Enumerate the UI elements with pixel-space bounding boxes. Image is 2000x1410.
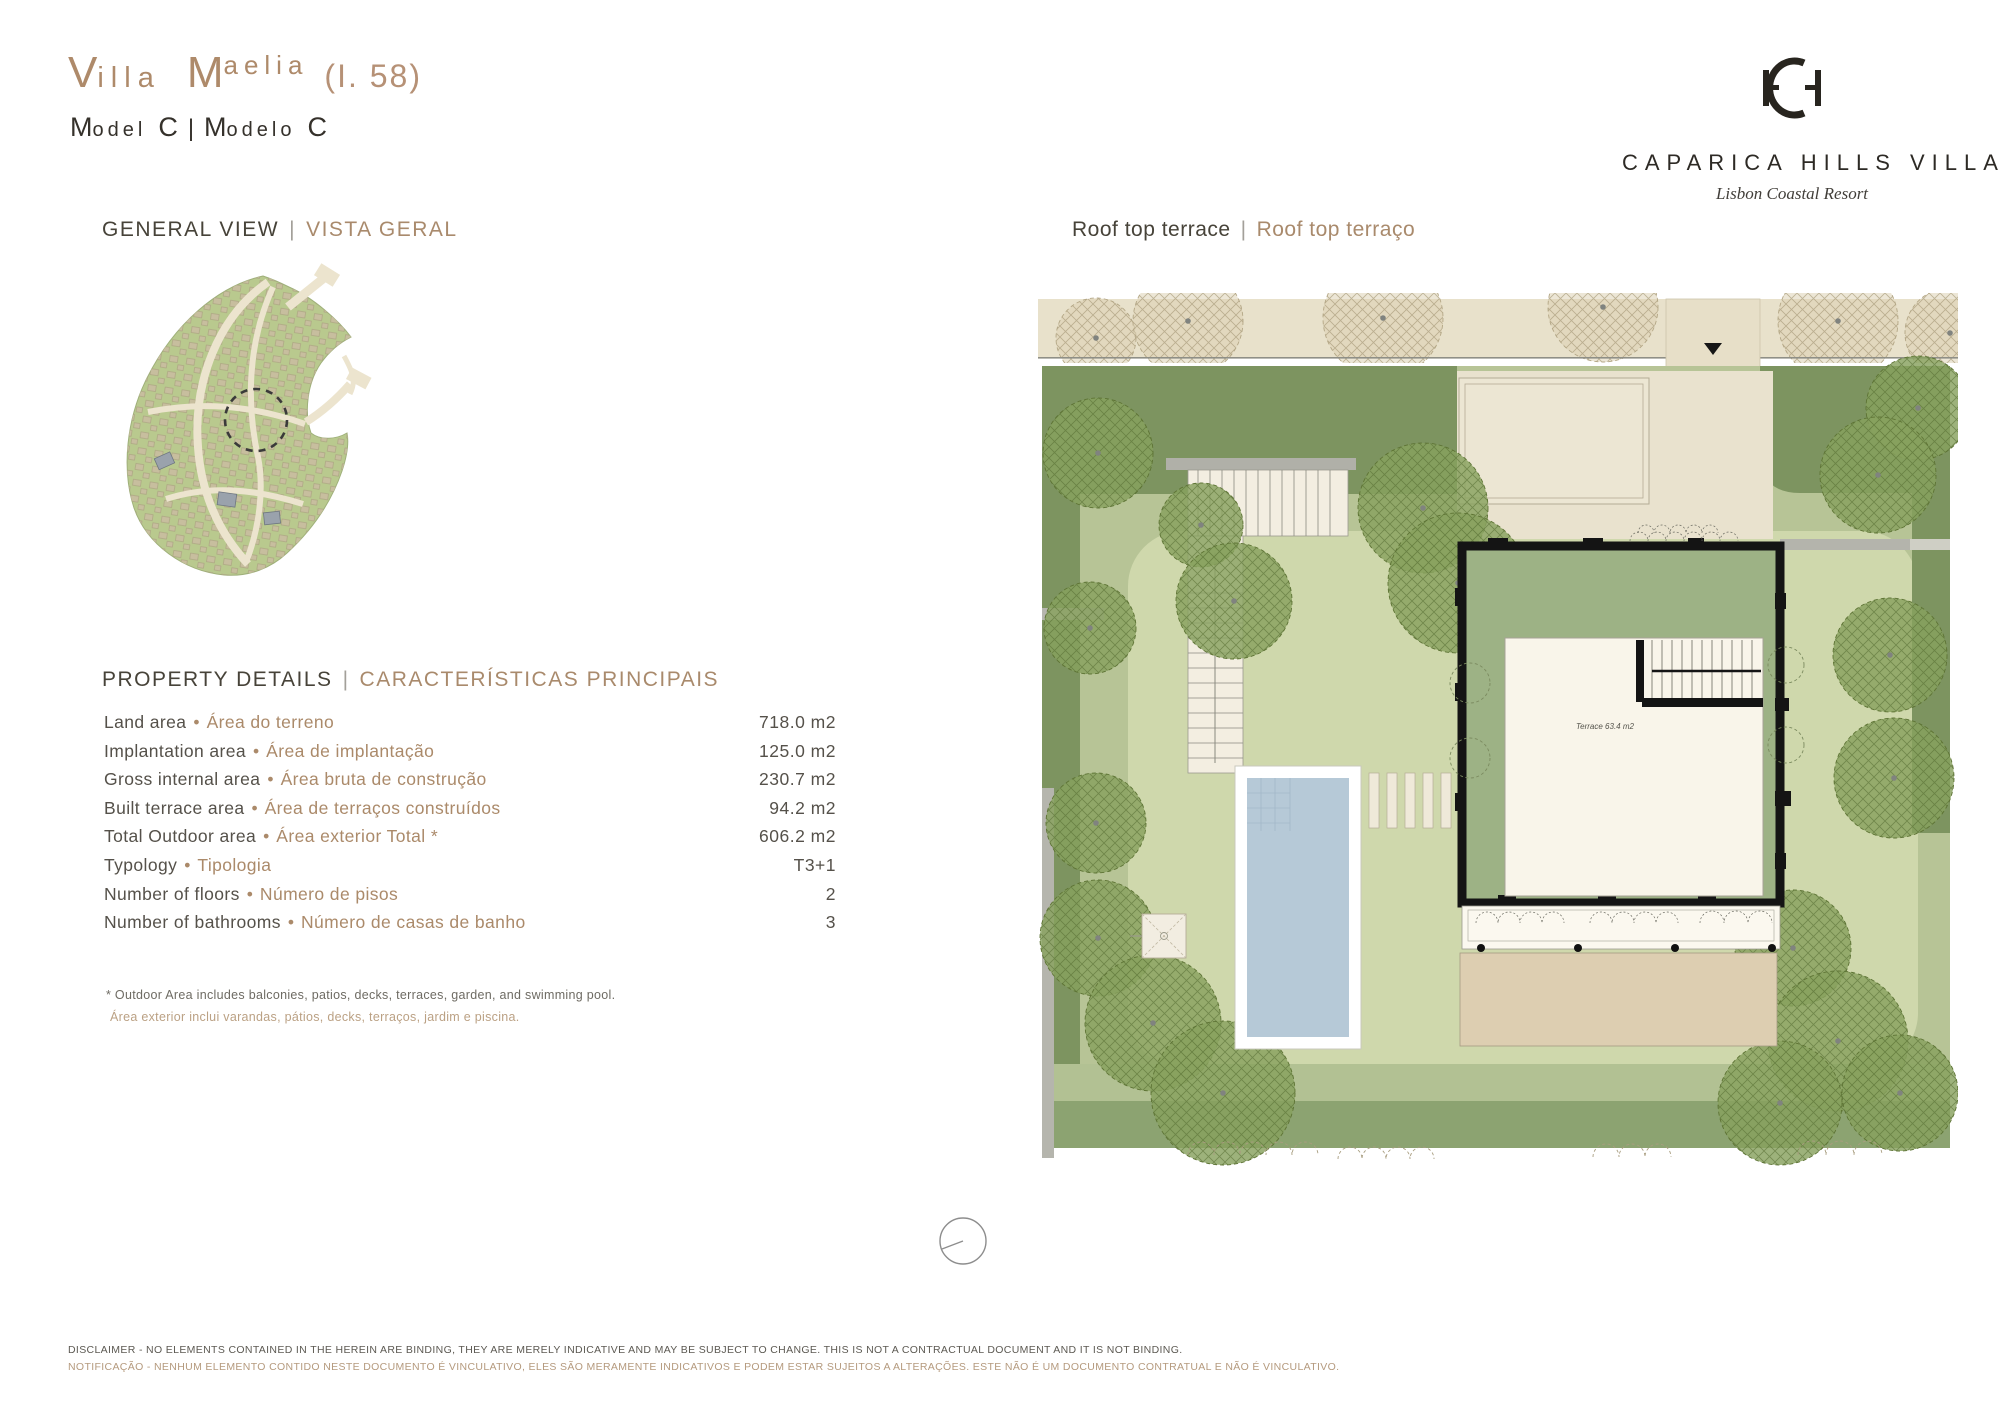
row-value: 230.7 m2 bbox=[759, 769, 836, 790]
table-row: Number of bathrooms•Número de casas de b… bbox=[104, 912, 836, 941]
swimming-pool bbox=[1235, 766, 1361, 1049]
table-row: Typology•Tipologia T3+1 bbox=[104, 855, 836, 884]
row-value: T3+1 bbox=[794, 855, 836, 876]
floor-plan: Terrace 63.4 m2 bbox=[1038, 293, 1958, 1173]
row-value: 718.0 m2 bbox=[759, 712, 836, 733]
table-row: Implantation area•Área de implantação 12… bbox=[104, 741, 836, 770]
path-right bbox=[1780, 539, 1910, 550]
roof-stair bbox=[1636, 640, 1763, 707]
patio bbox=[1460, 953, 1777, 1046]
row-value: 125.0 m2 bbox=[759, 741, 836, 762]
disclaimer-en: DISCLAIMER - NO ELEMENTS CONTAINED IN TH… bbox=[68, 1344, 1183, 1356]
page-title: VillaMaelia(I. 58) bbox=[68, 48, 422, 98]
title-part: V bbox=[68, 48, 97, 97]
table-row: Total Outdoor area•Área exterior Total *… bbox=[104, 826, 836, 855]
model-subtitle: ModelC|ModeloC bbox=[70, 112, 327, 143]
driveway bbox=[1666, 299, 1760, 371]
brochure-page: VillaMaelia(I. 58) ModelC|ModeloC CAPARI… bbox=[0, 0, 2000, 1410]
lot-number: (I. 58) bbox=[324, 58, 422, 94]
row-value: 94.2 m2 bbox=[769, 798, 836, 819]
table-row: Built terrace area•Área de terraços cons… bbox=[104, 798, 836, 827]
footnote-pt: Área exterior inclui varandas, pátios, d… bbox=[110, 1010, 520, 1024]
retaining-wall bbox=[1166, 458, 1356, 470]
site-map bbox=[98, 262, 402, 596]
general-view-header: GENERAL VIEW|VISTA GERAL bbox=[102, 218, 458, 242]
villa-building: Terrace 63.4 m2 bbox=[1455, 538, 1791, 906]
property-details-table: Land area•Área do terreno 718.0 m2 Impla… bbox=[104, 712, 836, 941]
brand-name: CAPARICA HILLS VILLAS bbox=[1622, 150, 1962, 176]
row-value: 3 bbox=[826, 912, 836, 933]
disclaimer-pt: NOTIFICAÇÃO - NENHUM ELEMENTO CONTIDO NE… bbox=[68, 1361, 1339, 1373]
table-row: Land area•Área do terreno 718.0 m2 bbox=[104, 712, 836, 741]
row-value: 2 bbox=[826, 884, 836, 905]
north-indicator bbox=[936, 1214, 990, 1268]
brand-tagline: Lisbon Coastal Resort bbox=[1622, 184, 1962, 204]
terrace-area-label: Terrace 63.4 m2 bbox=[1576, 722, 1635, 731]
table-row: Number of floors•Número de pisos 2 bbox=[104, 884, 836, 913]
hch-monogram-icon bbox=[1760, 40, 1824, 136]
footnote-en: * Outdoor Area includes balconies, patio… bbox=[106, 988, 615, 1002]
property-details-header: PROPERTY DETAILS|CARACTERÍSTICAS PRINCIP… bbox=[102, 668, 719, 692]
table-row: Gross internal area•Área bruta de constr… bbox=[104, 769, 836, 798]
balcony-strip bbox=[1462, 906, 1780, 952]
plan-header: Roof top terrace|Roof top terraço bbox=[1072, 218, 1415, 242]
brand-block: CAPARICA HILLS VILLAS Lisbon Coastal Res… bbox=[1622, 40, 1962, 204]
row-value: 606.2 m2 bbox=[759, 826, 836, 847]
